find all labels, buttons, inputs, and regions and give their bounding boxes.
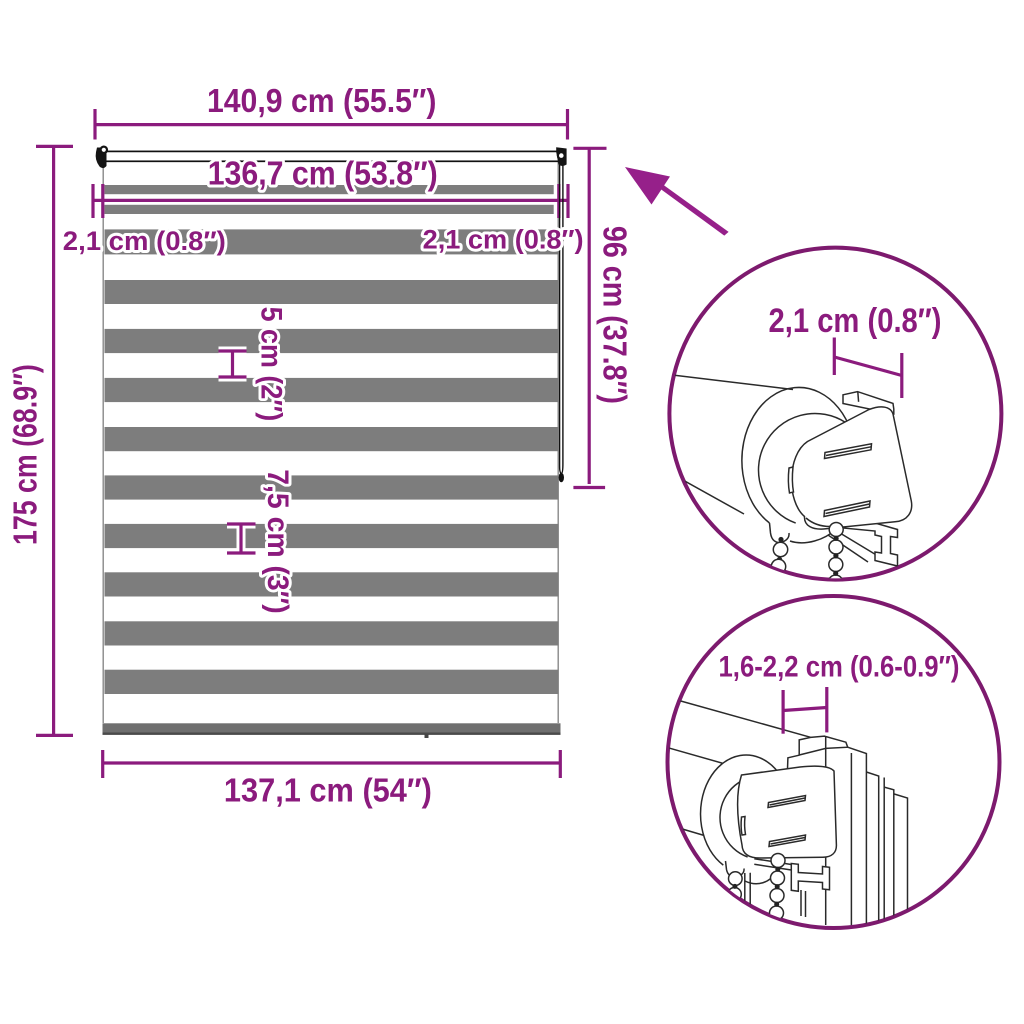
svg-text:5 cm (2″): 5 cm (2″) — [255, 307, 288, 422]
svg-text:140,9 cm (55.5″): 140,9 cm (55.5″) — [207, 82, 437, 119]
svg-text:96 cm (37.8″): 96 cm (37.8″) — [597, 226, 634, 404]
svg-text:1,6-2,2 cm (0.6-0.9″): 1,6-2,2 cm (0.6-0.9″) — [719, 650, 960, 683]
svg-text:7,5 cm (3″): 7,5 cm (3″) — [261, 469, 294, 614]
svg-text:137,1 cm (54″): 137,1 cm (54″) — [224, 772, 432, 809]
svg-text:175 cm (68.9″): 175 cm (68.9″) — [7, 364, 44, 545]
svg-text:2,1 cm (0.8″): 2,1 cm (0.8″) — [769, 302, 942, 340]
svg-text:2,1 cm (0.8″): 2,1 cm (0.8″) — [423, 225, 584, 255]
svg-text:2,1 cm (0.8″): 2,1 cm (0.8″) — [63, 226, 226, 256]
svg-text:136,7 cm (53.8″): 136,7 cm (53.8″) — [208, 155, 438, 192]
